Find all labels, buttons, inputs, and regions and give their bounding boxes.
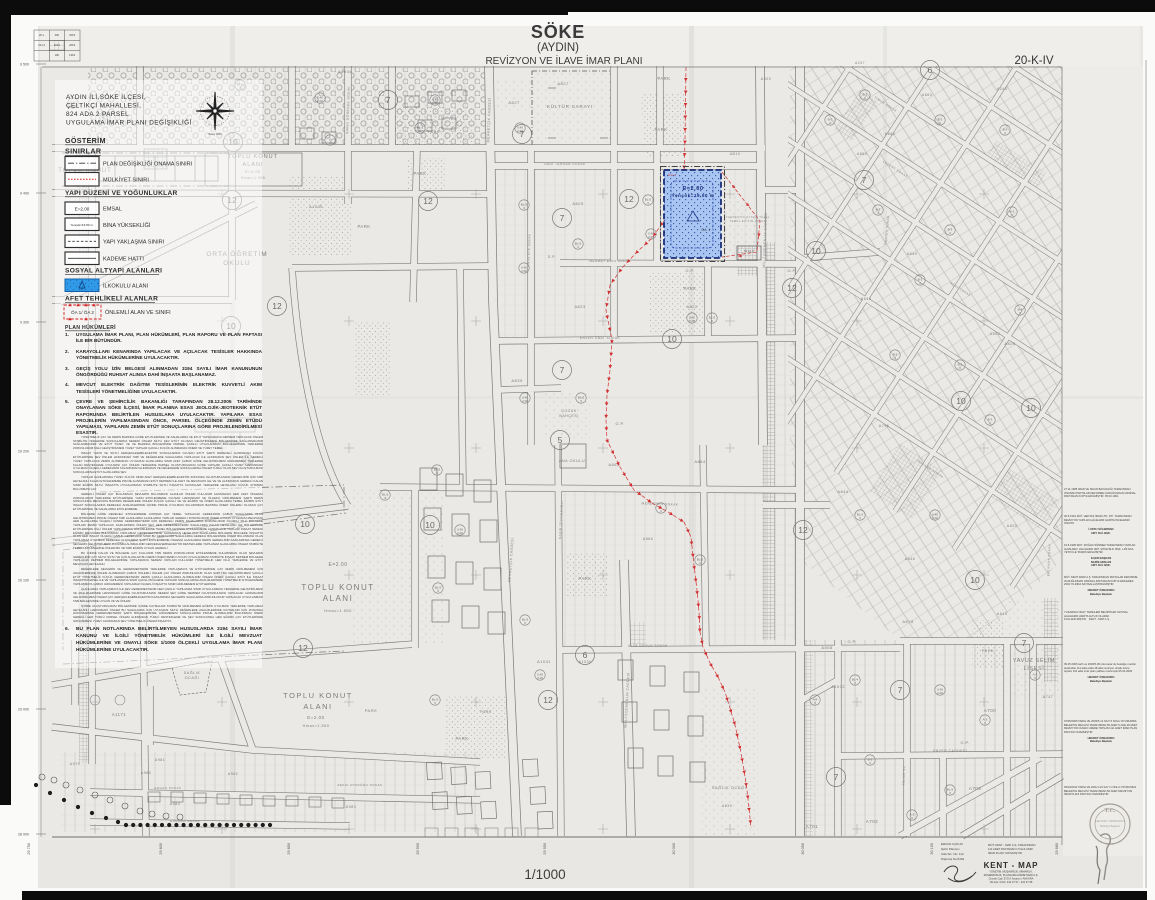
svg-text:O.P.: O.P. bbox=[787, 269, 796, 273]
svg-text:A980: A980 bbox=[170, 802, 180, 806]
svg-text:TELSİZ SK.: TELSİZ SK. bbox=[901, 764, 907, 785]
svg-text:A644: A644 bbox=[861, 297, 871, 301]
svg-text:ERHAN SOKAK: ERHAN SOKAK bbox=[154, 786, 181, 790]
svg-text:YAVUZ SELİM: YAVUZ SELİM bbox=[1013, 657, 1055, 664]
svg-text:10: 10 bbox=[970, 575, 980, 585]
svg-text:20-L: 20-L bbox=[39, 33, 45, 37]
svg-text:PARK: PARK bbox=[578, 576, 591, 581]
svg-text:A980: A980 bbox=[141, 771, 151, 775]
svg-text:A1171: A1171 bbox=[112, 712, 126, 717]
svg-text:PARK: PARK bbox=[413, 171, 426, 176]
svg-text:ÖA 1: ÖA 1 bbox=[701, 228, 711, 232]
svg-text:2.00: 2.00 bbox=[517, 129, 523, 133]
svg-text:12: 12 bbox=[272, 301, 282, 311]
svg-text:PARK: PARK bbox=[365, 708, 378, 713]
svg-text:7: 7 bbox=[560, 365, 565, 375]
svg-text:1/1000: 1/1000 bbox=[524, 867, 565, 882]
svg-text:2.00: 2.00 bbox=[689, 319, 695, 323]
svg-text:D.P.: D.P. bbox=[548, 255, 556, 259]
svg-text:(AYDIN): (AYDIN) bbox=[537, 42, 579, 54]
svg-text:SINIRLAR: SINIRLAR bbox=[65, 147, 102, 156]
svg-text:A865: A865 bbox=[643, 537, 653, 541]
svg-text:O.P.: O.P. bbox=[847, 640, 856, 644]
svg-text:İLKOKULU ALANI: İLKOKULU ALANI bbox=[103, 283, 149, 290]
svg-text:9 400: 9 400 bbox=[20, 192, 29, 196]
svg-text:A703: A703 bbox=[969, 786, 982, 791]
svg-text:O.P.: O.P. bbox=[615, 422, 624, 426]
svg-text:30 100: 30 100 bbox=[930, 843, 934, 855]
svg-text:A844: A844 bbox=[837, 489, 849, 494]
svg-text:PLAN HÜKÜMLERİ: PLAN HÜKÜMLERİ bbox=[65, 324, 116, 331]
svg-text:A8034: A8034 bbox=[338, 69, 352, 74]
svg-text:T.C.: T.C. bbox=[1105, 808, 1116, 814]
svg-text:29 800: 29 800 bbox=[159, 843, 163, 855]
svg-text:A1032: A1032 bbox=[831, 684, 845, 689]
svg-text:REVİZYON VE İLAVE İMAR PLANI: REVİZYON VE İLAVE İMAR PLANI bbox=[485, 54, 642, 67]
svg-text:9 300: 9 300 bbox=[20, 321, 29, 325]
svg-text:TRAFO: TRAFO bbox=[744, 250, 755, 253]
svg-text:Hmax=1.550: Hmax=1.550 bbox=[303, 724, 330, 728]
svg-text:30 050: 30 050 bbox=[801, 843, 805, 855]
svg-text:Yençok=19.50 m.: Yençok=19.50 m. bbox=[70, 223, 93, 227]
svg-text:MEHMET EMİN SOKAK: MEHMET EMİN SOKAK bbox=[590, 258, 631, 263]
svg-text:29 100: 29 100 bbox=[18, 579, 29, 583]
svg-text:2.00: 2.00 bbox=[937, 691, 943, 695]
svg-text:A1031: A1031 bbox=[537, 659, 551, 664]
svg-text:10: 10 bbox=[956, 396, 966, 406]
svg-text:PARK: PARK bbox=[428, 130, 440, 134]
svg-text:19K2: 19K2 bbox=[69, 53, 76, 57]
svg-text:A829: A829 bbox=[1004, 341, 1016, 346]
svg-text:PARK: PARK bbox=[357, 224, 370, 229]
svg-text:29 850: 29 850 bbox=[287, 843, 291, 855]
svg-text:A660: A660 bbox=[857, 152, 867, 156]
svg-text:A808: A808 bbox=[821, 645, 833, 650]
svg-text:AFET TEHLİKELİ ALANLAR: AFET TEHLİKELİ ALANLAR bbox=[65, 295, 158, 303]
svg-text:A1030: A1030 bbox=[579, 660, 592, 664]
svg-text:BİNA YÜKSEKLİĞİ: BİNA YÜKSEKLİĞİ bbox=[103, 222, 151, 229]
svg-text:A839: A839 bbox=[511, 378, 523, 383]
svg-text:2.00: 2.00 bbox=[317, 99, 323, 103]
svg-text:2.00: 2.00 bbox=[932, 516, 938, 520]
svg-text:A649: A649 bbox=[907, 252, 917, 256]
svg-text:A247: A247 bbox=[855, 61, 865, 65]
svg-text:7: 7 bbox=[834, 772, 839, 782]
svg-text:SÖKE: SÖKE bbox=[531, 22, 585, 42]
svg-text:20-K-IV: 20-K-IV bbox=[1015, 55, 1054, 67]
svg-text:PARK: PARK bbox=[480, 710, 492, 714]
svg-text:6: 6 bbox=[583, 650, 588, 660]
svg-text:TOPLU KONUT: TOPLU KONUT bbox=[301, 583, 374, 592]
svg-text:PARK: PARK bbox=[657, 76, 670, 81]
svg-text:AB10: AB10 bbox=[730, 152, 741, 156]
svg-text:20K3: 20K3 bbox=[69, 43, 76, 47]
svg-text:ÇELTİKÇİ MAHALLESİ,: ÇELTİKÇİ MAHALLESİ, bbox=[66, 101, 141, 110]
svg-text:A820: A820 bbox=[761, 77, 771, 81]
svg-text:A825: A825 bbox=[572, 201, 584, 206]
svg-text:29 000: 29 000 bbox=[18, 708, 29, 712]
svg-text:20K: 20K bbox=[55, 33, 60, 37]
svg-text:ZEKAİ AYDOĞDU SOKAK: ZEKAİ AYDOĞDU SOKAK bbox=[338, 782, 383, 787]
svg-text:A646: A646 bbox=[905, 557, 915, 561]
svg-text:12: 12 bbox=[798, 525, 808, 535]
svg-text:GÖSTERİM: GÖSTERİM bbox=[65, 136, 106, 145]
svg-text:A827: A827 bbox=[557, 81, 569, 86]
svg-text:MÜLKİYET SINIRI: MÜLKİYET SINIRI bbox=[103, 177, 149, 184]
svg-text:10: 10 bbox=[300, 519, 310, 529]
svg-text:10: 10 bbox=[667, 334, 677, 344]
svg-text:YAPI YAKLAŞMA SINIRI: YAPI YAKLAŞMA SINIRI bbox=[103, 240, 165, 246]
svg-text:Oda Sic. No: 112: Oda Sic. No: 112 bbox=[941, 852, 964, 856]
svg-text:ÇOCUK: ÇOCUK bbox=[561, 409, 577, 413]
svg-text:KADEME HATTI: KADEME HATTI bbox=[103, 257, 144, 263]
svg-text:PLAN DEĞİŞİKLİĞİ ONAMA SINIRI: PLAN DEĞİŞİKLİĞİ ONAMA SINIRI bbox=[103, 161, 193, 168]
svg-text:Şehir Plancısı: Şehir Plancısı bbox=[941, 847, 960, 851]
svg-text:Diploma No:5402: Diploma No:5402 bbox=[941, 857, 965, 861]
svg-text:O.P.: O.P. bbox=[685, 269, 694, 273]
svg-text:29 950: 29 950 bbox=[543, 843, 547, 855]
svg-text:ERKAN UÇKUN: ERKAN UÇKUN bbox=[941, 842, 963, 846]
svg-text:EMSAL: EMSAL bbox=[103, 207, 122, 213]
svg-text:TOPLU KONUT: TOPLU KONUT bbox=[283, 691, 353, 700]
svg-text:A701: A701 bbox=[806, 824, 819, 829]
svg-text:824 ADA 2 PARSEL: 824 ADA 2 PARSEL bbox=[66, 111, 129, 118]
svg-text:29 900: 29 900 bbox=[416, 843, 420, 855]
svg-text:LİSESİ: LİSESİ bbox=[1024, 665, 1045, 672]
svg-text:ÖA 2: ÖA 2 bbox=[668, 173, 677, 177]
svg-text:GÜRHAN SOKAK: GÜRHAN SOKAK bbox=[170, 819, 200, 823]
svg-text:19K: 19K bbox=[55, 53, 60, 57]
svg-text:Cinnah Cad. 57/2 A.Ayrancı / A: Cinnah Cad. 57/2 A.Ayrancı / ANKARA bbox=[989, 877, 1034, 881]
svg-text:SAĞLIK: SAĞLIK bbox=[184, 670, 201, 675]
svg-text:UYGULAMA İMAR PLANI DEĞİŞİKLİĞ: UYGULAMA İMAR PLANI DEĞİŞİKLİĞİ bbox=[66, 118, 192, 127]
svg-text:10: 10 bbox=[1026, 403, 1036, 413]
svg-text:A796: A796 bbox=[879, 424, 889, 428]
svg-text:A864: A864 bbox=[694, 459, 706, 464]
svg-text:7: 7 bbox=[1022, 638, 1027, 648]
svg-text:E=2.00: E=2.00 bbox=[683, 186, 704, 192]
svg-text:A982: A982 bbox=[228, 772, 238, 776]
svg-text:ÖA 1/ ÖA 2: ÖA 1/ ÖA 2 bbox=[71, 309, 94, 315]
svg-text:12: 12 bbox=[543, 695, 553, 705]
svg-text:A983: A983 bbox=[346, 805, 356, 809]
svg-text:29 750: 29 750 bbox=[27, 843, 31, 855]
svg-text:KÜLTÜR SARAYI: KÜLTÜR SARAYI bbox=[547, 103, 593, 109]
svg-text:2.00: 2.00 bbox=[432, 101, 438, 105]
svg-text:A643: A643 bbox=[997, 612, 1007, 616]
svg-text:A1035: A1035 bbox=[309, 204, 323, 209]
svg-text:2.00: 2.00 bbox=[537, 676, 543, 680]
svg-text:A839: A839 bbox=[722, 804, 732, 808]
svg-text:PARK: PARK bbox=[455, 736, 468, 741]
svg-text:A981: A981 bbox=[155, 758, 165, 762]
svg-text:10: 10 bbox=[811, 246, 821, 256]
svg-text:A747: A747 bbox=[1043, 695, 1053, 699]
svg-text:A979: A979 bbox=[70, 762, 80, 766]
svg-text:29 680: 29 680 bbox=[1055, 843, 1059, 855]
svg-text:A662: A662 bbox=[885, 132, 895, 136]
svg-text:2.00: 2.00 bbox=[457, 531, 463, 535]
svg-text:7: 7 bbox=[386, 95, 391, 105]
svg-text:E=2.00: E=2.00 bbox=[329, 562, 348, 568]
svg-text:ÜNYER CADDESİ: ÜNYER CADDESİ bbox=[933, 748, 967, 753]
svg-text:A245: A245 bbox=[997, 87, 1007, 91]
svg-text:Hmax=1.550: Hmax=1.550 bbox=[324, 608, 352, 613]
svg-text:A822: A822 bbox=[686, 304, 698, 309]
svg-text:A678: A678 bbox=[902, 619, 914, 624]
svg-text:ALİM ORHUN SOKAK: ALİM ORHUN SOKAK bbox=[628, 643, 668, 648]
svg-text:12: 12 bbox=[624, 194, 634, 204]
svg-text:KENT - MAP: KENT - MAP bbox=[984, 861, 1039, 870]
svg-text:SADİ TARHAN SOKAK: SADİ TARHAN SOKAK bbox=[544, 161, 586, 166]
svg-text:12: 12 bbox=[787, 283, 797, 293]
svg-text:20-L3: 20-L3 bbox=[38, 43, 45, 47]
svg-text:Kuzey Yönü: Kuzey Yönü bbox=[209, 133, 223, 136]
svg-text:2.00: 2.00 bbox=[648, 235, 654, 239]
svg-text:ALANI: ALANI bbox=[303, 702, 332, 711]
svg-text:A823: A823 bbox=[574, 304, 586, 309]
svg-text:İMAR PLANI YAPILMIŞTIR.: İMAR PLANI YAPILMIŞTIR. bbox=[988, 850, 1023, 855]
svg-text:HECDET ÖZBAKIRCI: HECDET ÖZBAKIRCI bbox=[1095, 819, 1124, 823]
svg-text:ANA OKULU: ANA OKULU bbox=[559, 459, 585, 463]
svg-text:ALANI: ALANI bbox=[323, 594, 354, 603]
svg-text:Yençok=19.50 m: Yençok=19.50 m bbox=[672, 193, 715, 198]
svg-text:ÖNLEMLİ ALAN VE SINIFI: ÖNLEMLİ ALAN VE SINIFI bbox=[105, 309, 171, 316]
svg-text:PARK: PARK bbox=[982, 648, 995, 653]
svg-text:ENVER ÖNAT SOKAK: ENVER ÖNAT SOKAK bbox=[580, 336, 621, 340]
svg-text:A820: A820 bbox=[1007, 524, 1017, 528]
svg-text:OCAĞI: OCAĞI bbox=[185, 675, 200, 680]
svg-text:A663: A663 bbox=[922, 93, 932, 97]
svg-text:5: 5 bbox=[558, 435, 563, 445]
svg-text:A702: A702 bbox=[866, 819, 879, 824]
svg-text:E=2.00: E=2.00 bbox=[75, 206, 90, 211]
svg-text:20K4: 20K4 bbox=[54, 43, 61, 47]
svg-text:A827: A827 bbox=[508, 100, 520, 105]
svg-text:2.00: 2.00 bbox=[521, 269, 527, 273]
svg-text:9 500: 9 500 bbox=[20, 63, 29, 67]
svg-text:A653: A653 bbox=[990, 332, 1000, 336]
svg-text:12: 12 bbox=[298, 643, 308, 653]
svg-text:PARK: PARK bbox=[683, 286, 696, 291]
svg-text:BAHÇESİ: BAHÇESİ bbox=[559, 413, 578, 418]
svg-text:E=2.00: E=2.00 bbox=[307, 715, 324, 720]
svg-text:6: 6 bbox=[928, 65, 933, 75]
svg-text:YAPI DÜZENİ VE YOĞUNLUKLAR: YAPI DÜZENİ VE YOĞUNLUKLAR bbox=[65, 188, 178, 197]
svg-text:30 000: 30 000 bbox=[672, 843, 676, 855]
svg-text:7: 7 bbox=[898, 685, 903, 695]
svg-text:29 200: 29 200 bbox=[18, 450, 29, 454]
svg-text:7: 7 bbox=[862, 175, 867, 185]
svg-text:20K2: 20K2 bbox=[69, 33, 76, 37]
svg-text:28 900: 28 900 bbox=[18, 833, 29, 837]
svg-text:AYDIN İLİ,SÖKE İLÇESİ,: AYDIN İLİ,SÖKE İLÇESİ, bbox=[66, 92, 146, 101]
svg-text:A700: A700 bbox=[984, 708, 997, 713]
svg-text:2.00: 2.00 bbox=[522, 399, 528, 403]
svg-text:PARK: PARK bbox=[654, 127, 667, 132]
svg-text:Tel-Fax: 0312. 442 27 97 - 442: Tel-Fax: 0312. 442 27 97 - 442 27 98 bbox=[990, 880, 1033, 884]
svg-text:7: 7 bbox=[560, 213, 565, 223]
svg-text:Belediye Başkanı: Belediye Başkanı bbox=[1100, 824, 1120, 828]
svg-text:12: 12 bbox=[423, 196, 433, 206]
svg-text:O.P.: O.P. bbox=[960, 741, 969, 745]
svg-text:10: 10 bbox=[425, 520, 435, 530]
svg-text:SOSYAL ALTYAPI ALANLARI: SOSYAL ALTYAPI ALANLARI bbox=[65, 268, 162, 275]
svg-text:SAĞLIK OCAĞI: SAĞLIK OCAĞI bbox=[712, 785, 746, 790]
